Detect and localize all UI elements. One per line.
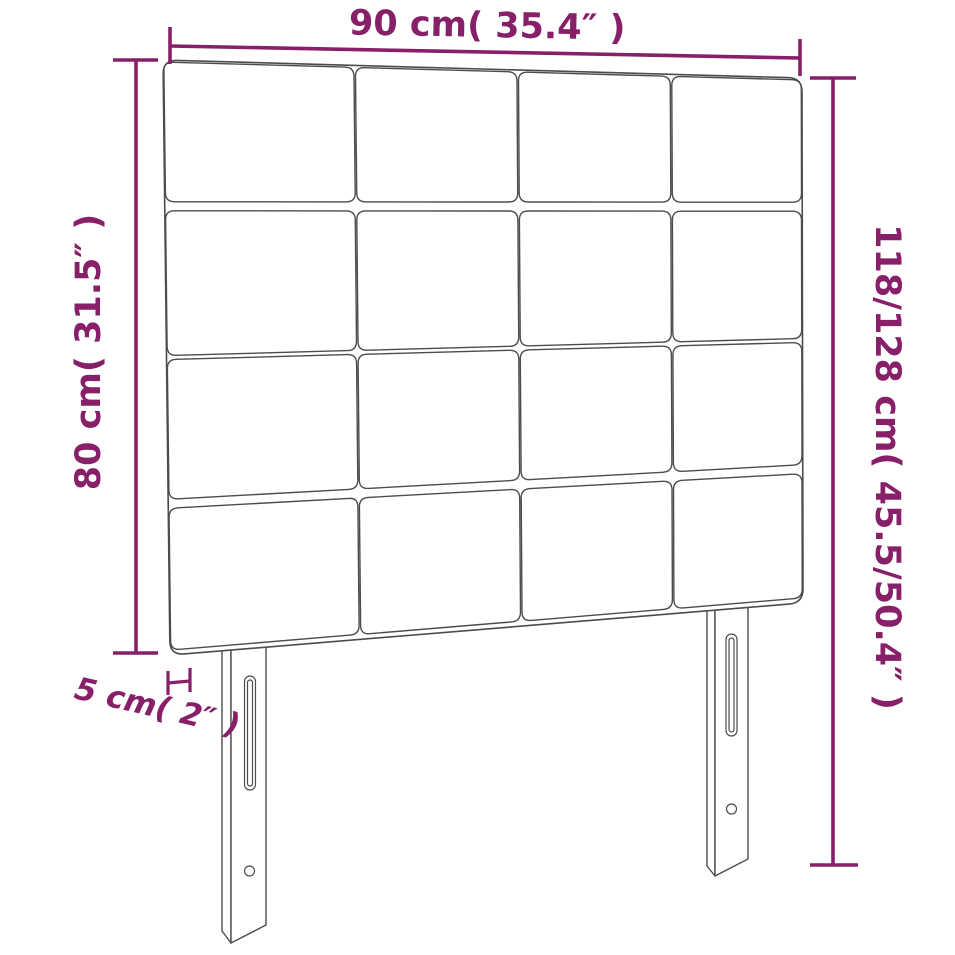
right-leg-side-face	[707, 600, 715, 876]
tufted-panel	[166, 211, 357, 356]
tufted-panel	[164, 62, 355, 202]
width-dimension-label: 90 cm( 35.4″ )	[349, 3, 626, 48]
tufted-panel	[521, 481, 672, 620]
headboard-height-label: 80 cm( 31.5″ )	[69, 214, 109, 490]
tufted-panel	[359, 490, 520, 634]
tufted-panel	[167, 355, 357, 499]
depth-bracket-bar	[168, 681, 190, 683]
tufted-panel	[673, 343, 802, 472]
total-height-label: 118/128 cm( 45.5/50.4″ )	[867, 224, 907, 710]
headboard-height-dimension: 80 cm( 31.5″ )	[69, 60, 158, 653]
depth-dimension: 5 cm( 2″ )	[71, 668, 243, 744]
dimension-line	[170, 46, 800, 58]
tufted-panel	[169, 498, 359, 649]
left-leg	[222, 637, 266, 943]
tufted-panel	[518, 72, 670, 202]
tufted-panel	[673, 474, 802, 608]
headboard-drawing	[163, 60, 803, 654]
headboard-dimension-diagram: 90 cm( 35.4″ ) 80 cm( 31.5″ ) 118/128 cm…	[0, 0, 955, 955]
tufted-panel	[519, 211, 671, 346]
tufted-panel	[672, 211, 801, 342]
total-height-dimension: 118/128 cm( 45.5/50.4″ )	[810, 78, 907, 865]
left-leg-side-face	[222, 640, 231, 943]
product-dimension-diagram: 90 cm( 35.4″ ) 80 cm( 31.5″ ) 118/128 cm…	[0, 0, 955, 955]
tufted-panel	[672, 77, 802, 203]
tufted-panel	[358, 350, 520, 488]
right-leg	[707, 597, 748, 876]
tufted-panel	[357, 211, 519, 350]
tufted-panel	[520, 346, 672, 479]
depth-dimension-label: 5 cm( 2″ )	[71, 671, 243, 744]
tufted-panel	[355, 68, 517, 202]
